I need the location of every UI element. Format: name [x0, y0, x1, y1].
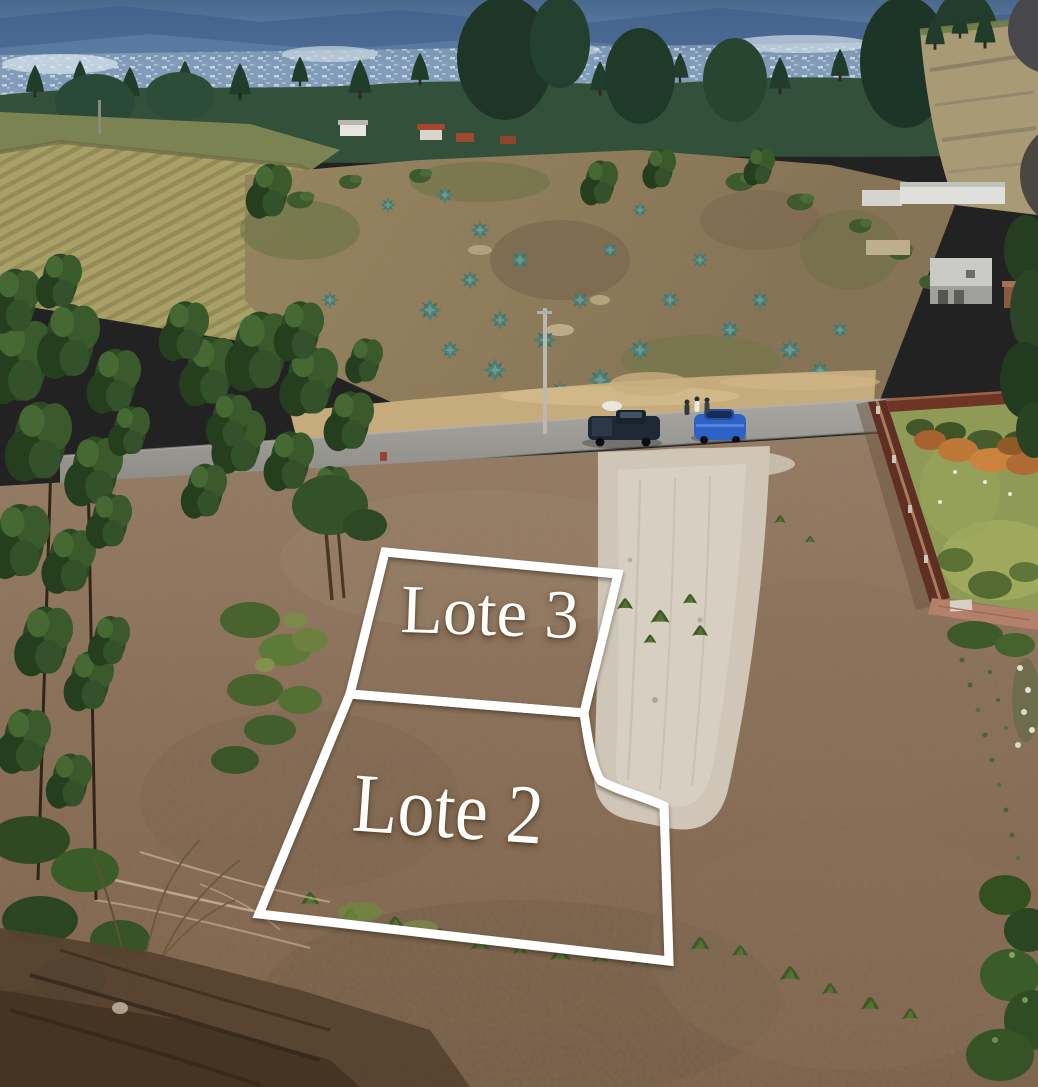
far-utility-pole [98, 100, 101, 134]
white-tarp [602, 401, 622, 411]
photo-scene [0, 0, 1038, 1087]
red-roadside-object [380, 452, 387, 461]
aerial-photo: Lote 3 Lote 2 [0, 0, 1038, 1087]
utility-pole [543, 308, 547, 434]
blue-hatchback [691, 409, 747, 444]
utility-pole-crossarm [537, 311, 552, 314]
